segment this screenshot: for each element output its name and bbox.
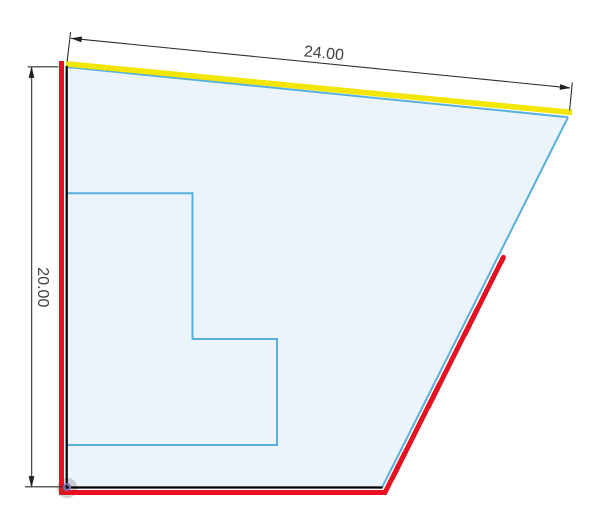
svg-text:20.00: 20.00 <box>34 267 51 307</box>
svg-text:24.00: 24.00 <box>303 43 345 64</box>
